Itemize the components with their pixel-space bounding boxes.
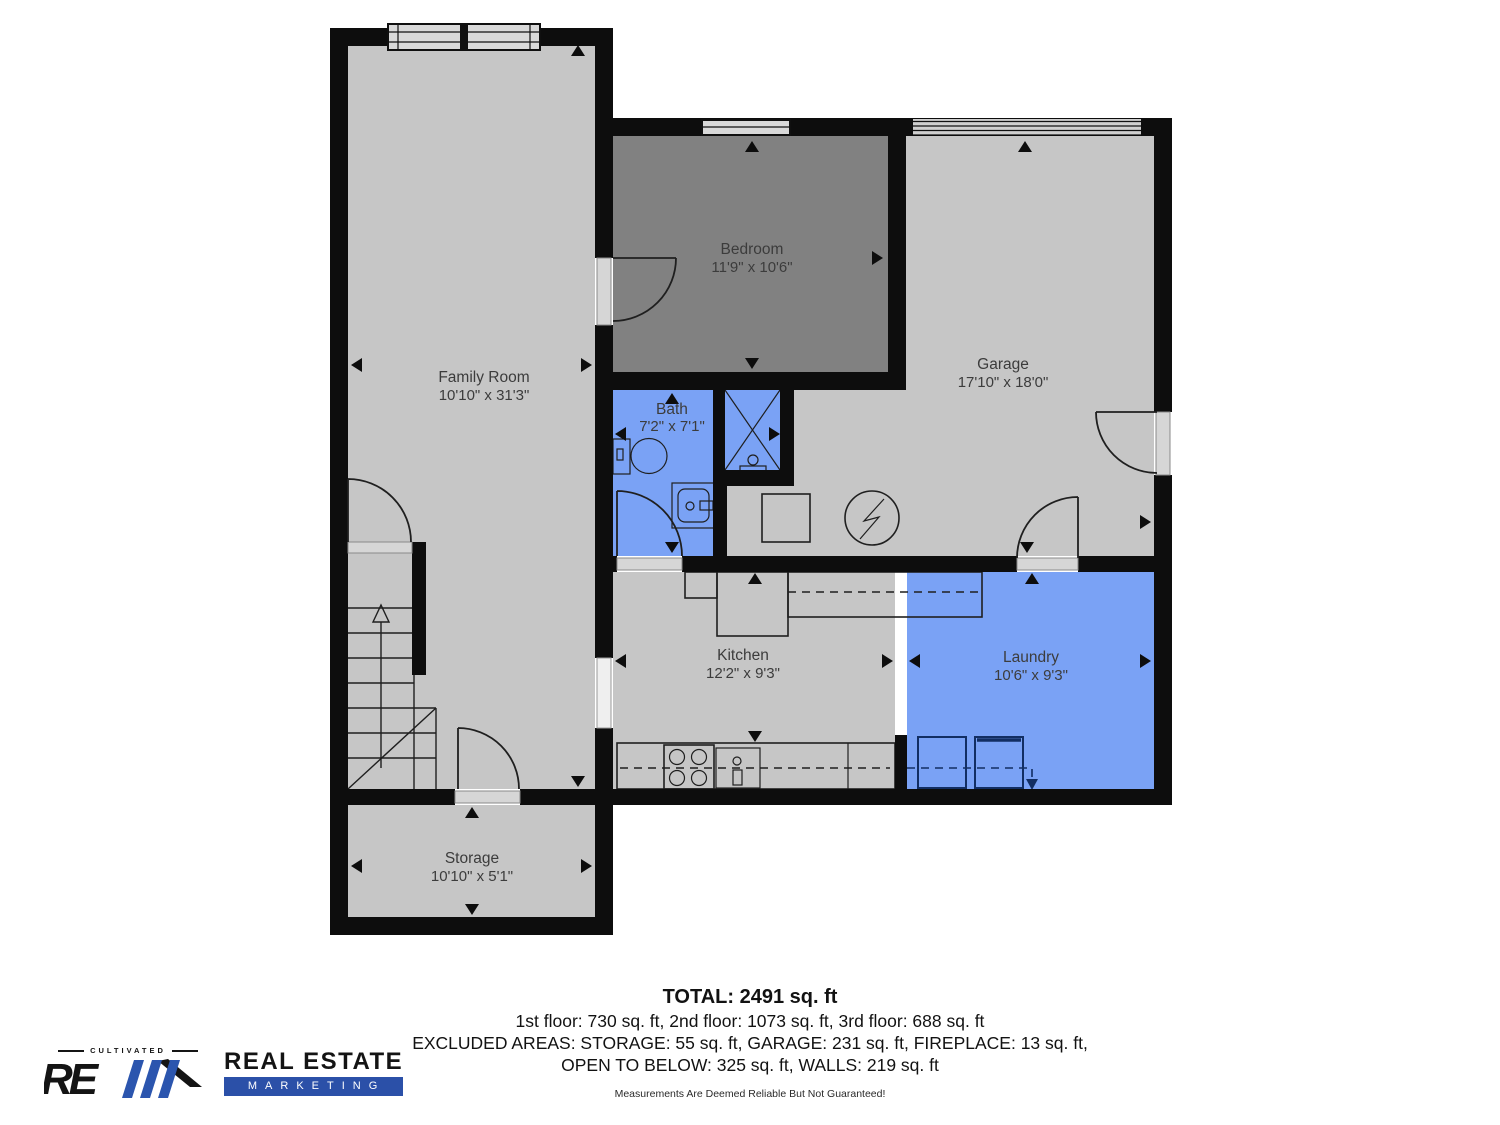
family-room-dims: 10'10" x 31'3": [439, 387, 530, 404]
floor-areas-text: 1st floor: 730 sq. ft, 2nd floor: 1073 s…: [0, 1011, 1500, 1032]
kitchen-dims: 12'2" x 9'3": [706, 665, 780, 682]
logo-wordmark: REAL ESTATE MARKETING: [224, 1050, 403, 1096]
logo-monogram: CULTIVATED RE: [44, 1046, 212, 1100]
storage-label: Storage: [445, 850, 499, 867]
brand-logo: CULTIVATED RE REAL ESTATE MARKETING: [44, 1046, 403, 1100]
bedroom-dims: 11'9" x 10'6": [711, 259, 792, 276]
re-monogram-icon: RE: [44, 1056, 212, 1100]
bath-label: Bath: [656, 401, 688, 418]
bath-dims: 7'2" x 7'1": [639, 418, 705, 435]
tagline-dash: [172, 1050, 198, 1052]
logo-name-line1: REAL ESTATE: [224, 1050, 403, 1074]
laundry-label: Laundry: [1003, 649, 1059, 666]
logo-name-line2: MARKETING: [224, 1077, 403, 1096]
logo-tagline-row: CULTIVATED: [58, 1046, 198, 1055]
family-room-floor: [348, 46, 595, 789]
hall-floor-west: [727, 486, 794, 556]
kitchen-pass-through: [597, 658, 611, 728]
laundry-dims: 10'6" x 9'3": [994, 667, 1068, 684]
garage-label: Garage: [977, 356, 1029, 373]
bedroom-label: Bedroom: [721, 241, 784, 258]
page: { "colors": { "wall": "#0d0d0d", "floor_…: [0, 0, 1500, 1125]
logo-tagline: CULTIVATED: [90, 1046, 166, 1055]
svg-text:RE: RE: [44, 1056, 100, 1100]
garage-dims: 17'10" x 18'0": [958, 374, 1049, 391]
storage-dims: 10'10" x 5'1": [431, 868, 513, 885]
floor-plan: Family Room 10'10" x 31'3" Bedroom 11'9"…: [0, 0, 1500, 1125]
tagline-dash: [58, 1050, 84, 1052]
family-room-label: Family Room: [438, 369, 529, 386]
garage-floor: [906, 136, 1154, 390]
kitchen-label: Kitchen: [717, 647, 769, 664]
total-area-text: TOTAL: 2491 sq. ft: [0, 986, 1500, 1009]
